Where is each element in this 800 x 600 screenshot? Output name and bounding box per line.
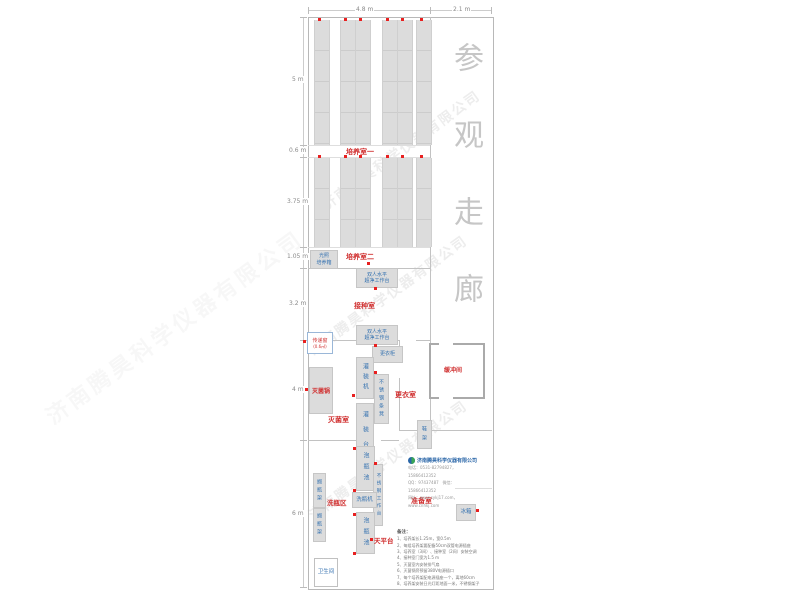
shoe-rack-box: 鞋架 bbox=[417, 420, 432, 449]
marker-dot bbox=[367, 262, 370, 265]
marker-dot bbox=[420, 155, 423, 158]
culture-rack bbox=[340, 158, 356, 247]
dim-left-06m: 0.6 m bbox=[288, 147, 307, 154]
culture-rack bbox=[382, 20, 398, 145]
fridge-label: 冰箱 bbox=[460, 509, 471, 516]
soak-pool-label: 泡瓶池 bbox=[361, 452, 370, 485]
marker-dot bbox=[352, 394, 355, 397]
marker-dot bbox=[476, 509, 479, 512]
culture-rack bbox=[314, 158, 330, 247]
note-item: 8、培养架安装日光灯距地面一米，不锈钢架子 bbox=[397, 581, 489, 587]
dim-tick bbox=[300, 157, 307, 158]
balance-table-label: 天平台 bbox=[374, 535, 394, 545]
clean-bench-label-line2: 超净工作台 bbox=[364, 278, 389, 284]
room-label-washing-area: 洗瓶区 bbox=[327, 497, 347, 507]
culture-rack bbox=[340, 20, 356, 145]
pass-window-label: 传递窗 bbox=[312, 337, 327, 344]
band2-top-line bbox=[308, 247, 430, 248]
light-incubator-label-line2: 培养箱 bbox=[316, 260, 331, 266]
light-incubator-box: 光照 培养箱 bbox=[310, 250, 338, 269]
marker-dot bbox=[420, 18, 423, 21]
notes-block: 备注： 1、培养架长1.25m，宽0.5m 2、每组培养架要配备50cm双管电源… bbox=[397, 529, 489, 587]
culture-rack bbox=[416, 158, 432, 247]
dim-left-6m: 6 m bbox=[291, 510, 305, 517]
marker-dot bbox=[353, 489, 356, 492]
filling-machine-label: 灌装机 bbox=[361, 363, 370, 393]
culture-rack bbox=[416, 20, 432, 145]
bottle-rack-label: 搁瓶架 bbox=[316, 513, 323, 537]
room-label-inoculation: 接种室 bbox=[354, 301, 375, 311]
light-incubator-label-line1: 光照 bbox=[319, 253, 329, 259]
marker-dot bbox=[386, 155, 389, 158]
dim-tick bbox=[308, 7, 309, 14]
marker-dot bbox=[374, 371, 377, 374]
company-qq: QQ：97437487 微信：15866412352 bbox=[408, 479, 478, 494]
culture-rack bbox=[314, 20, 330, 145]
dim-tick bbox=[300, 145, 307, 146]
stainless-bench-label: 不锈钢条凳 bbox=[378, 379, 385, 419]
marker-dot bbox=[344, 18, 347, 21]
dim-tick bbox=[300, 17, 307, 18]
marker-dot bbox=[359, 155, 362, 158]
floorplan-page: { "watermark": "济南腾昊科学仪器有限公司", "corridor… bbox=[0, 0, 800, 600]
wardrobe-box: 更衣柜 bbox=[372, 346, 403, 363]
door-gap bbox=[398, 362, 401, 378]
clean-bench-label-line1: 双人水平 bbox=[367, 329, 387, 335]
door-gap bbox=[400, 339, 416, 342]
marker-dot bbox=[370, 538, 373, 541]
marker-dot bbox=[318, 155, 321, 158]
room-label-toilet: 卫生间 bbox=[318, 569, 335, 576]
dim-tick bbox=[300, 247, 307, 248]
clean-bench-box: 双人水平 超净工作台 bbox=[356, 325, 398, 345]
clean-bench-label-line1: 双人水平 bbox=[367, 272, 387, 278]
marker-dot bbox=[303, 340, 306, 343]
filling-machine-box: 灌装机 bbox=[356, 357, 374, 399]
marker-dot bbox=[374, 462, 377, 465]
dim-left-375m: 3.75 m bbox=[286, 198, 309, 205]
company-logo-icon bbox=[408, 457, 415, 464]
marker-dot bbox=[353, 552, 356, 555]
company-web: 网址：www.sykj17.com，www.cnhkj.com bbox=[408, 494, 478, 509]
toilet-room: 卫生间 bbox=[314, 558, 338, 587]
pass-window-box: 传递窗 (0.6㎡) bbox=[307, 332, 333, 354]
marker-dot bbox=[386, 18, 389, 21]
autoclave-box: 灭菌锅 bbox=[309, 367, 333, 414]
marker-dot bbox=[359, 18, 362, 21]
bottle-washer-label: 洗瓶机 bbox=[356, 497, 373, 504]
dim-top-corridor: 2.1 m bbox=[452, 6, 471, 13]
culture-rack bbox=[382, 158, 398, 247]
marker-dot bbox=[353, 447, 356, 450]
prep-top-wall bbox=[399, 430, 492, 431]
marker-dot bbox=[374, 344, 377, 347]
watermark-text: 济南腾昊科学仪器有限公司 bbox=[38, 221, 309, 430]
dim-tick bbox=[300, 587, 307, 588]
culture-rack bbox=[397, 158, 413, 247]
bottle-rack-label: 搁瓶架 bbox=[316, 479, 323, 503]
washing-top-wall-left bbox=[308, 440, 356, 441]
marker-dot bbox=[353, 513, 356, 516]
culture-rack bbox=[355, 158, 371, 247]
dim-tick bbox=[491, 7, 492, 14]
washing-top-wall-right bbox=[381, 440, 399, 441]
bottle-rack-box: 搁瓶架 bbox=[313, 508, 326, 542]
dim-tick bbox=[430, 7, 431, 14]
clean-bench-box: 双人水平 超净工作台 bbox=[356, 268, 398, 288]
band1-top-line bbox=[308, 145, 430, 146]
buffer-door-bottom bbox=[439, 397, 453, 399]
dim-left-5m: 5 m bbox=[291, 76, 305, 83]
dim-tick bbox=[300, 440, 307, 441]
bottle-washer-box: 洗瓶机 bbox=[352, 492, 377, 508]
marker-dot bbox=[401, 18, 404, 21]
visitor-corridor-label: 参观走廊 bbox=[443, 42, 487, 350]
autoclave-label: 灭菌锅 bbox=[312, 386, 330, 395]
culture-rack bbox=[355, 20, 371, 145]
marker-dot bbox=[344, 155, 347, 158]
marker-dot bbox=[318, 18, 321, 21]
company-block: 济南腾昊科学仪器有限公司 电话：0531-82794827，1586641235… bbox=[408, 457, 478, 510]
dim-top-main: 4.8 m bbox=[355, 6, 374, 13]
soak-pool-label: 泡瓶池 bbox=[361, 517, 370, 550]
wardrobe-label: 更衣柜 bbox=[380, 351, 395, 357]
marker-dot bbox=[374, 287, 377, 290]
dim-left-105m: 1.05 m bbox=[286, 253, 309, 260]
marker-dot bbox=[401, 155, 404, 158]
stainless-bench-box: 不锈钢条凳 bbox=[374, 374, 389, 424]
culture-rack bbox=[397, 20, 413, 145]
clean-bench-label-line2: 超净工作台 bbox=[364, 335, 389, 341]
dim-tick bbox=[300, 268, 307, 269]
marker-dot bbox=[305, 388, 308, 391]
company-phone: 电话：0531-82794827，15866412352 bbox=[408, 464, 478, 479]
soak-pool-box: 泡瓶池 bbox=[356, 512, 375, 554]
company-name: 济南腾昊科学仪器有限公司 bbox=[417, 457, 477, 464]
dim-left-32m: 3.2 m bbox=[288, 300, 307, 307]
dim-left-4m: 4 m bbox=[291, 386, 305, 393]
shoe-rack-label: 鞋架 bbox=[421, 426, 428, 444]
room-label-culture2: 培养室二 bbox=[346, 252, 374, 262]
pass-window-size: (0.6㎡) bbox=[313, 344, 326, 350]
room-label-sterilization: 灭菌室 bbox=[328, 415, 349, 425]
room-label-buffer: 缓冲间 bbox=[444, 365, 462, 374]
bottle-rack-box: 搁瓶架 bbox=[313, 473, 326, 508]
room-label-changing: 更衣室 bbox=[395, 390, 416, 400]
